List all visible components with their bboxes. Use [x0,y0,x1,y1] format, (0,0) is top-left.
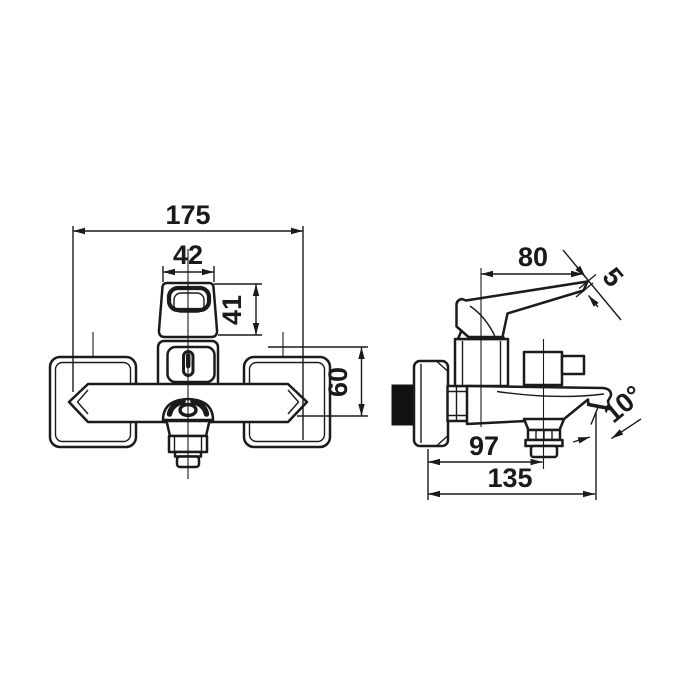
side-view [392,268,611,469]
dim-lever-tip-thickness: 5 [597,262,630,293]
dim-handle-width: 42 [173,240,203,270]
dim-handle-height: 41 [217,295,247,325]
lever-side [457,282,588,338]
dim-body-height: 60 [323,367,353,397]
dim-spout-angle: 10° [598,379,649,428]
wall-escutcheon [414,361,448,446]
dim-wall-to-spout-tip: 135 [487,463,532,493]
dim-overall-width: 175 [165,200,210,230]
diverter-knob-tab [562,356,584,374]
tick-10deg [591,406,599,425]
dim-lever-length: 80 [518,242,548,272]
arrow-5-lower [589,296,599,308]
handle-grip-outer [169,288,209,310]
wall-pipe-thread [392,385,414,425]
front-view [50,249,330,479]
arrow-10deg-left [573,437,590,442]
arrow-5-upper [577,267,586,277]
dim-wall-to-aerator: 97 [469,431,499,461]
faucet-technical-drawing: 175 42 41 60 80 5 97 135 10° [0,0,700,700]
drawing-sheet: 175 42 41 60 80 5 97 135 10° [0,0,700,700]
